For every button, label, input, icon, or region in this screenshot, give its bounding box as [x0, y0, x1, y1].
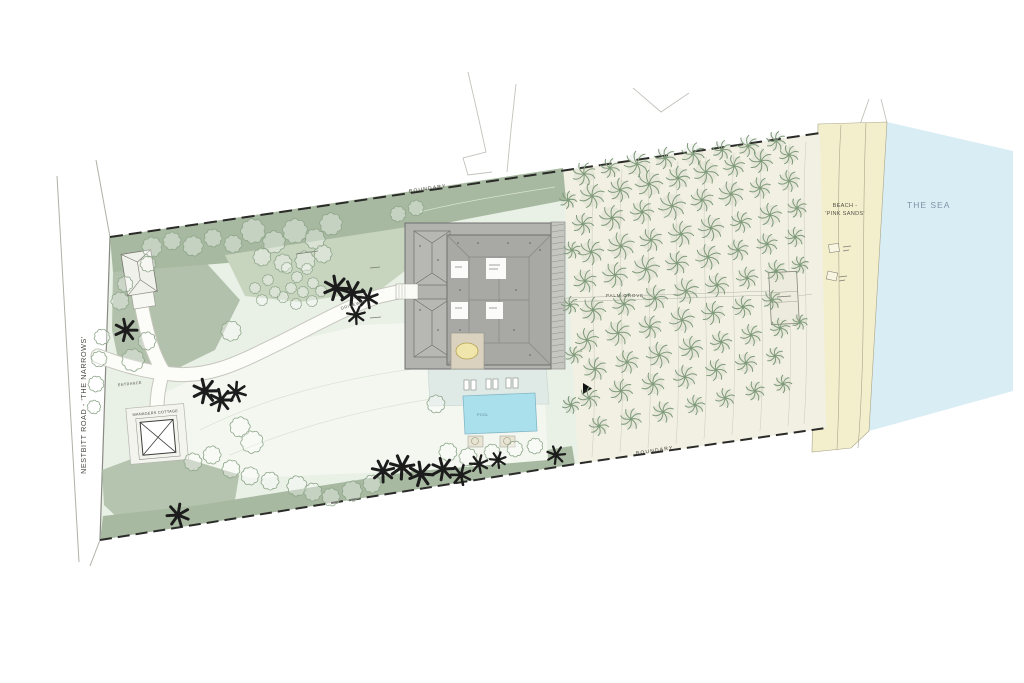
shrub: [291, 271, 302, 282]
sea-label: THE SEA: [907, 200, 950, 210]
round-tree: [253, 248, 271, 266]
lounger: [513, 378, 518, 388]
palm-tree: [635, 170, 663, 198]
gatehouse-porch: [132, 292, 156, 309]
beach-label-line2: 'PINK SANDS': [825, 211, 865, 217]
palm-tree: [785, 227, 805, 247]
round-tree: [94, 329, 110, 345]
courtyard: [486, 302, 503, 319]
palm-grove-label: PALM GROVE: [606, 293, 644, 298]
main-house: [396, 222, 565, 369]
road-edge: [90, 540, 100, 566]
lounger: [506, 378, 511, 388]
roof-pavilion: [414, 231, 450, 285]
patio-table: [456, 343, 478, 359]
lounger: [486, 379, 491, 389]
palm-tree: [578, 387, 600, 409]
courtyard: [486, 258, 506, 279]
lounger: [464, 380, 469, 390]
round-tree: [222, 460, 240, 478]
managers-cottage: MANAGERS COTTAGE: [126, 403, 189, 464]
palm-tree: [732, 296, 754, 318]
round-tree: [91, 351, 107, 367]
round-tree: [87, 400, 101, 414]
round-tree: [342, 481, 362, 501]
courtyard: [451, 302, 468, 319]
round-tree: [140, 256, 156, 272]
swimming-pool: [463, 393, 537, 434]
lounger: [493, 379, 498, 389]
shrub: [256, 294, 267, 305]
round-tree: [163, 232, 181, 250]
palm-tree: [774, 375, 792, 393]
courtyard: [451, 261, 468, 278]
road-edge: [96, 160, 110, 237]
context-line: [507, 84, 516, 172]
palm-tree: [630, 200, 654, 224]
round-tree: [138, 332, 156, 350]
round-tree: [240, 219, 265, 244]
beach-icon: [826, 271, 837, 281]
context-line: [881, 99, 887, 123]
beach-label-line1: BEACH -: [833, 203, 858, 209]
lounger: [471, 380, 476, 390]
sun-loungers: [464, 378, 518, 390]
road-label: NESTBITT ROAD - 'THE NARROWS': [79, 336, 88, 474]
roof-pavilion: [414, 299, 450, 357]
road-edge: [57, 176, 79, 562]
round-tree: [203, 446, 221, 464]
round-tree: [88, 376, 104, 392]
site-plan-page: MANAGERS COTTAGE NESTBITT ROAD - 'THE NA…: [0, 0, 1024, 683]
site-plan-drawing: MANAGERS COTTAGE NESTBITT ROAD - 'THE NA…: [0, 0, 1024, 683]
pool-label: POOL: [477, 413, 489, 417]
palm-tree: [666, 166, 690, 190]
sea-area: [869, 122, 1013, 431]
shrub: [249, 282, 260, 293]
context-line: [463, 72, 492, 175]
beach-icon: [828, 243, 839, 252]
shrub: [306, 295, 317, 306]
entry-walk: [396, 284, 418, 299]
shrub: [285, 282, 296, 293]
context-line: [633, 88, 689, 112]
shrub: [269, 286, 280, 297]
